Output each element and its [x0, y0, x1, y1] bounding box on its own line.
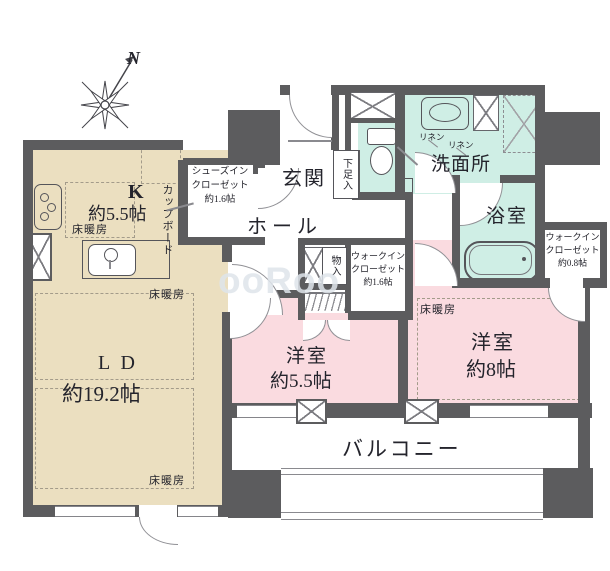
wall [452, 278, 543, 288]
walk-in-closet-08-label: ウォークイン クローゼット 約0.8帖 [544, 231, 601, 270]
wic16-line1: ウォークイン [350, 250, 406, 263]
wall [583, 278, 602, 288]
entrance-label: 玄関 [282, 162, 326, 191]
western-room-8-floor-heating-label: 床暖房 [420, 301, 456, 317]
kitchen-faucet-icon [104, 248, 118, 262]
stove-burner-icon [40, 212, 49, 221]
stove-burner-icon [47, 203, 56, 212]
linen-closet-icon [473, 95, 499, 131]
wall [352, 192, 405, 200]
western-room-8-label: 洋室 [471, 326, 515, 355]
cupboard-label: カップボード [159, 184, 175, 280]
entrance-step-line [288, 140, 332, 142]
balcony-wall-box-icon [296, 399, 327, 424]
wall [298, 238, 412, 245]
bathroom-label: 浴室 [486, 201, 528, 228]
balcony-label: バルコニー [342, 433, 462, 463]
wall [345, 85, 400, 92]
shoe-box: 下足入 [333, 150, 359, 199]
window [55, 506, 135, 517]
cupboard-zone [141, 145, 181, 184]
wall [23, 140, 183, 150]
kitchen-faucet-stem [109, 260, 111, 269]
floor-plan: N 下足入 物入 K 約5.5帖 床暖房 カップボード シューズイン クローゼッ… [0, 0, 610, 571]
shoes-in-closet-line1: シューズイン [187, 166, 253, 180]
wall [543, 278, 550, 288]
wall [405, 85, 545, 95]
entrance-door-arc [289, 95, 332, 138]
compass-north-label: N [127, 48, 140, 69]
wic08-line1: ウォークイン [544, 231, 601, 244]
shoes-in-closet-line2: クローゼット [187, 180, 253, 194]
wic08-line3: 約0.8帖 [544, 257, 601, 270]
ld-floor-heating-top-label: 床暖房 [149, 286, 185, 302]
window [237, 405, 296, 418]
watermark: ooRoo [218, 260, 340, 302]
shoe-box-label: 下足入 [339, 158, 354, 191]
ld-balcony-door-arc [139, 517, 178, 545]
wall [405, 192, 413, 320]
ld-balcony-door-opening [139, 505, 177, 517]
wall [280, 85, 290, 95]
ld-label: L D [98, 352, 138, 375]
window [470, 405, 548, 418]
wall [395, 85, 405, 200]
wall [331, 93, 339, 150]
wall [350, 118, 395, 123]
stove-burner-icon [40, 193, 49, 202]
balcony-pillar [543, 468, 593, 518]
hall-label: ホール [247, 210, 322, 239]
washroom-label: 洗面所 [431, 149, 491, 176]
wic08-line2: クローゼット [544, 244, 601, 257]
balcony-railing [281, 512, 543, 520]
western-room-55-size-label: 約5.5帖 [270, 366, 332, 393]
toilet-bowl-icon [370, 146, 393, 175]
balcony-wall-box-icon [404, 399, 439, 424]
toilet-tank-icon [367, 128, 396, 145]
window [178, 506, 218, 517]
wic16-line2: クローゼット [350, 263, 406, 276]
wic16-line3: 約1.6帖 [350, 276, 406, 289]
shoes-in-closet-line3: 約1.6帖 [187, 194, 253, 208]
pillar [228, 110, 280, 165]
wall [545, 222, 607, 230]
washbasin-bowl-icon [429, 103, 461, 122]
hall-closet-icon [348, 92, 397, 121]
western-room-8-size-label: 約8帖 [466, 353, 516, 382]
balcony-pillar [228, 470, 281, 518]
wall [23, 140, 33, 517]
bathtub-drain-icon [522, 257, 526, 261]
ld-floor-heating-bottom-label: 床暖房 [149, 472, 185, 488]
balcony-inner-edge [281, 468, 543, 475]
ld-size-label: 約19.2帖 [62, 378, 141, 408]
shoes-in-closet-label: シューズイン クローゼット 約1.6帖 [187, 166, 253, 207]
walk-in-closet-16-label: ウォークイン クローゼット 約1.6帖 [350, 250, 406, 289]
western-room-55-label: 洋室 [286, 341, 328, 368]
kitchen-floor-heating-label: 床暖房 [72, 221, 108, 237]
pillar [545, 112, 600, 165]
